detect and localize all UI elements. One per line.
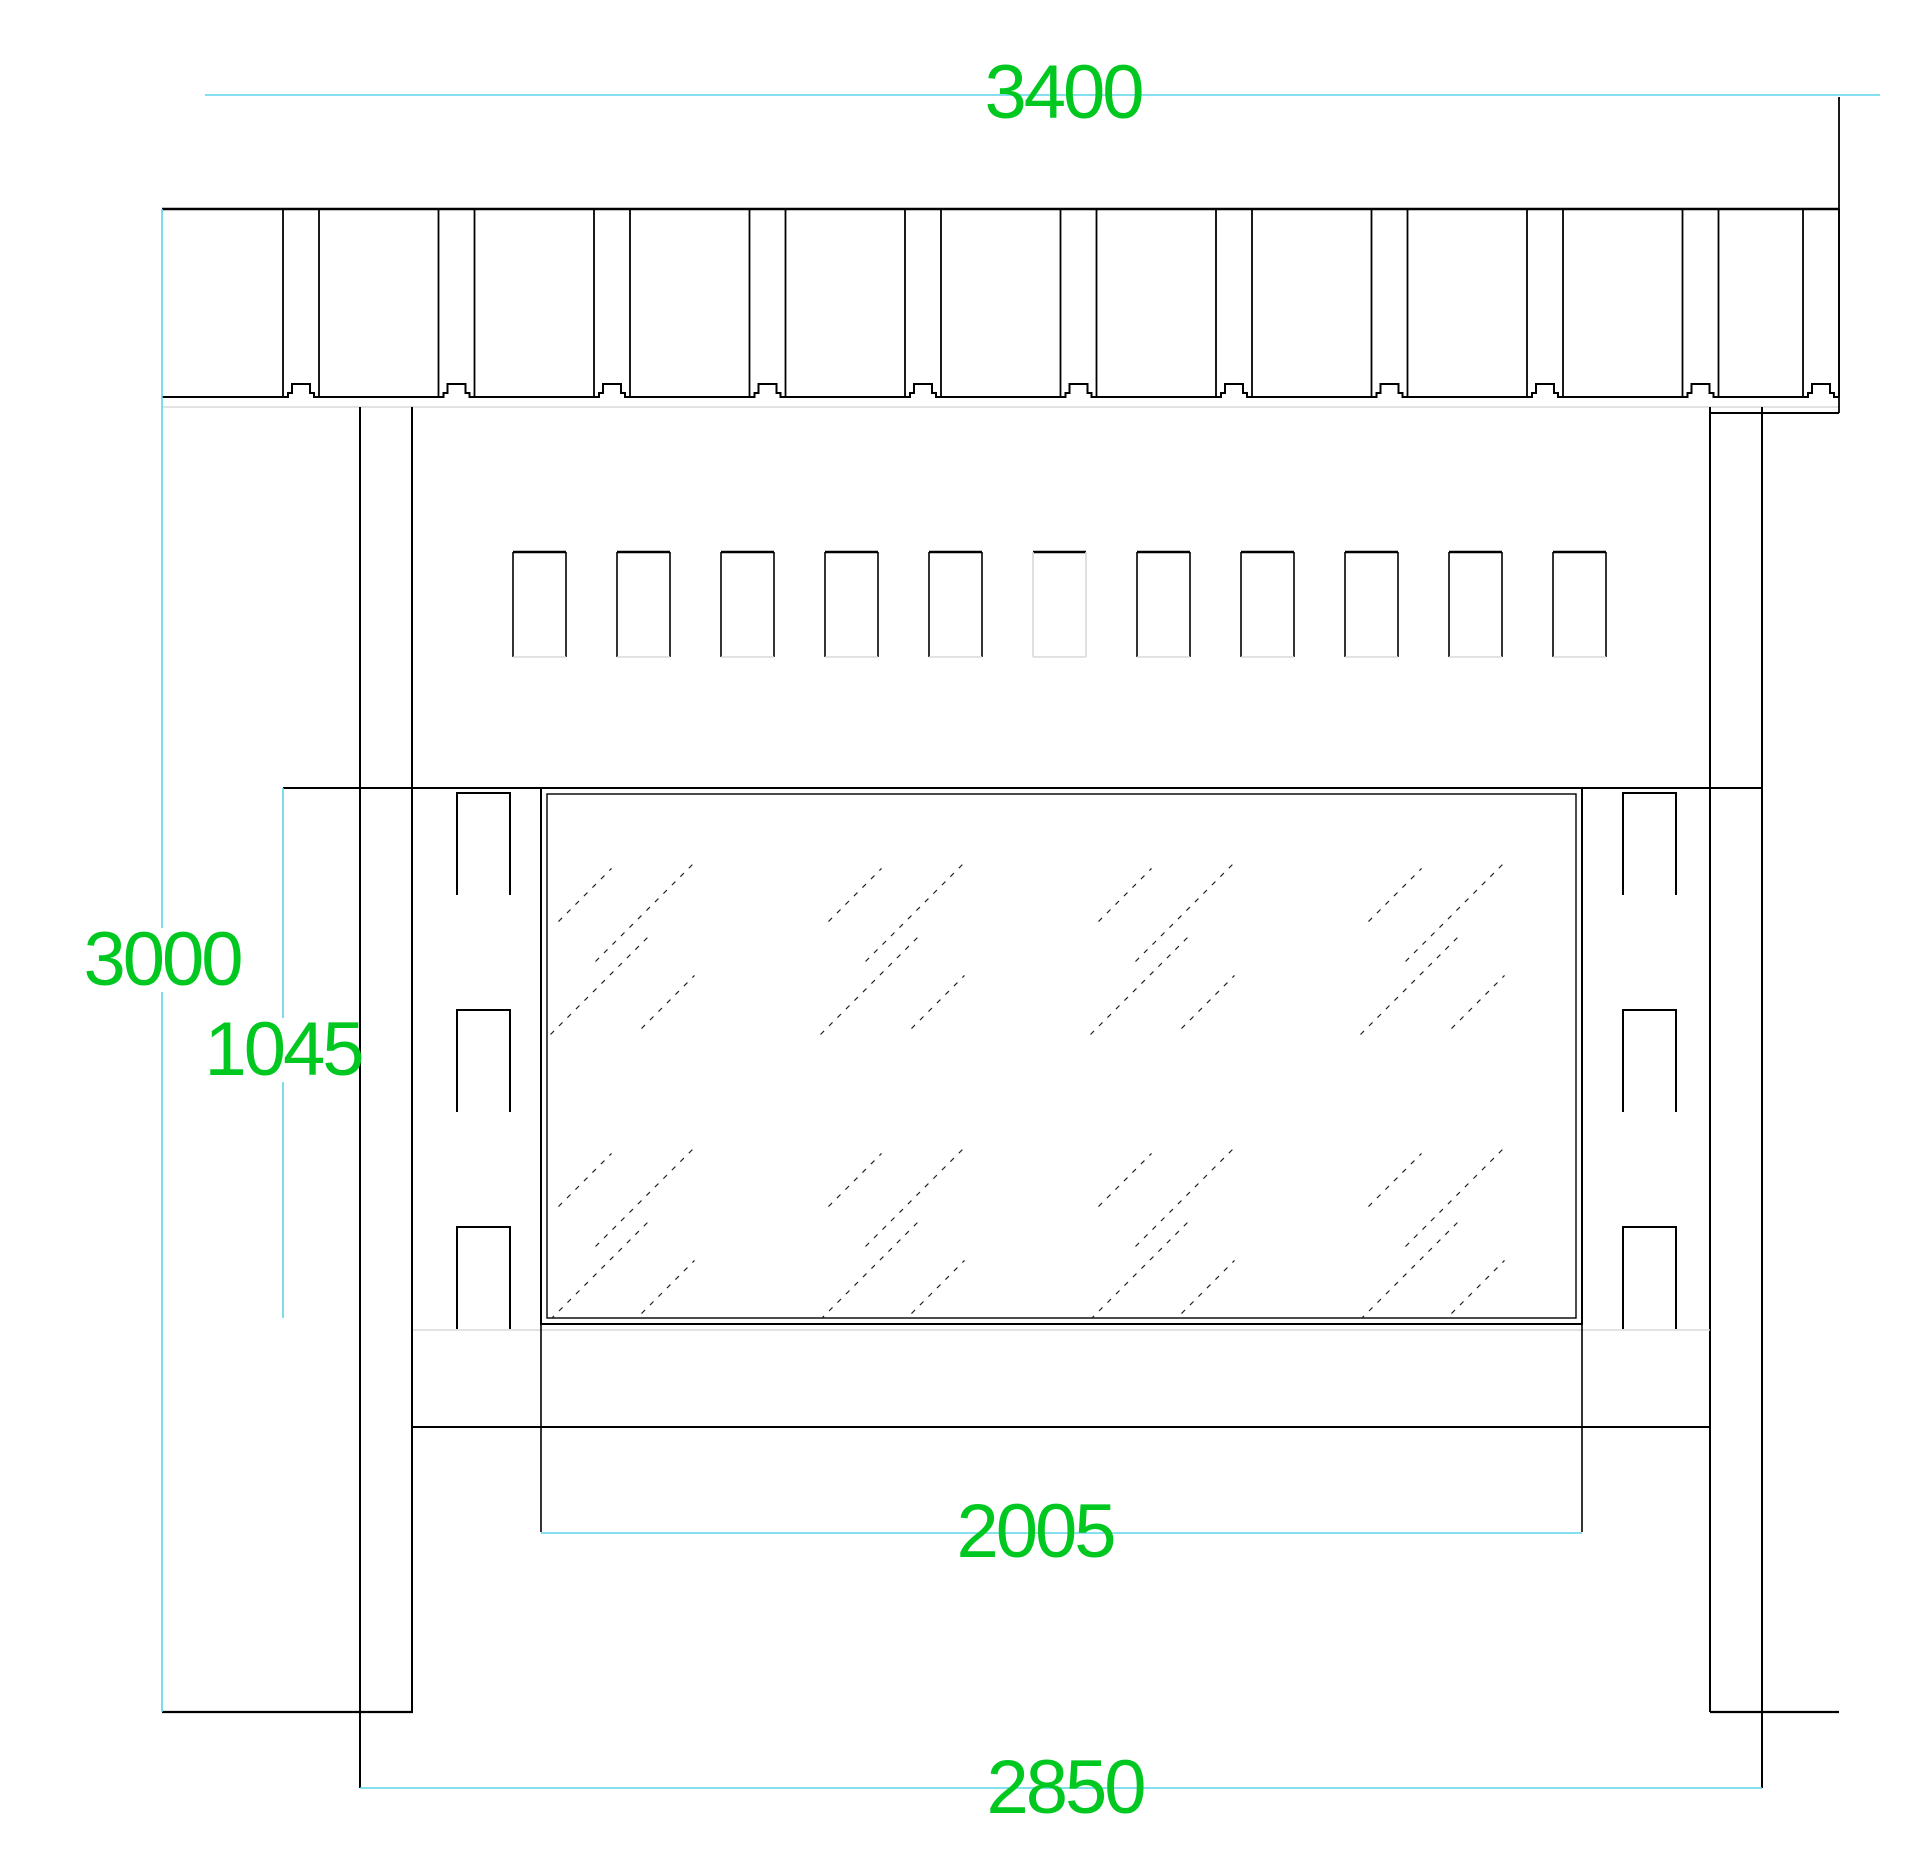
dimension-label-glass-width: 2005 xyxy=(956,1494,1113,1570)
dimension-label-panel-height: 1045 xyxy=(204,1012,361,1088)
cad-linework xyxy=(0,0,1920,1873)
drawing-sheet: 3400 3000 1045 2005 2850 xyxy=(0,0,1920,1873)
dimension-label-overall-width: 3400 xyxy=(984,55,1141,131)
dimension-label-post-spacing: 2850 xyxy=(986,1750,1143,1826)
dimension-label-overall-height: 3000 xyxy=(83,922,240,998)
